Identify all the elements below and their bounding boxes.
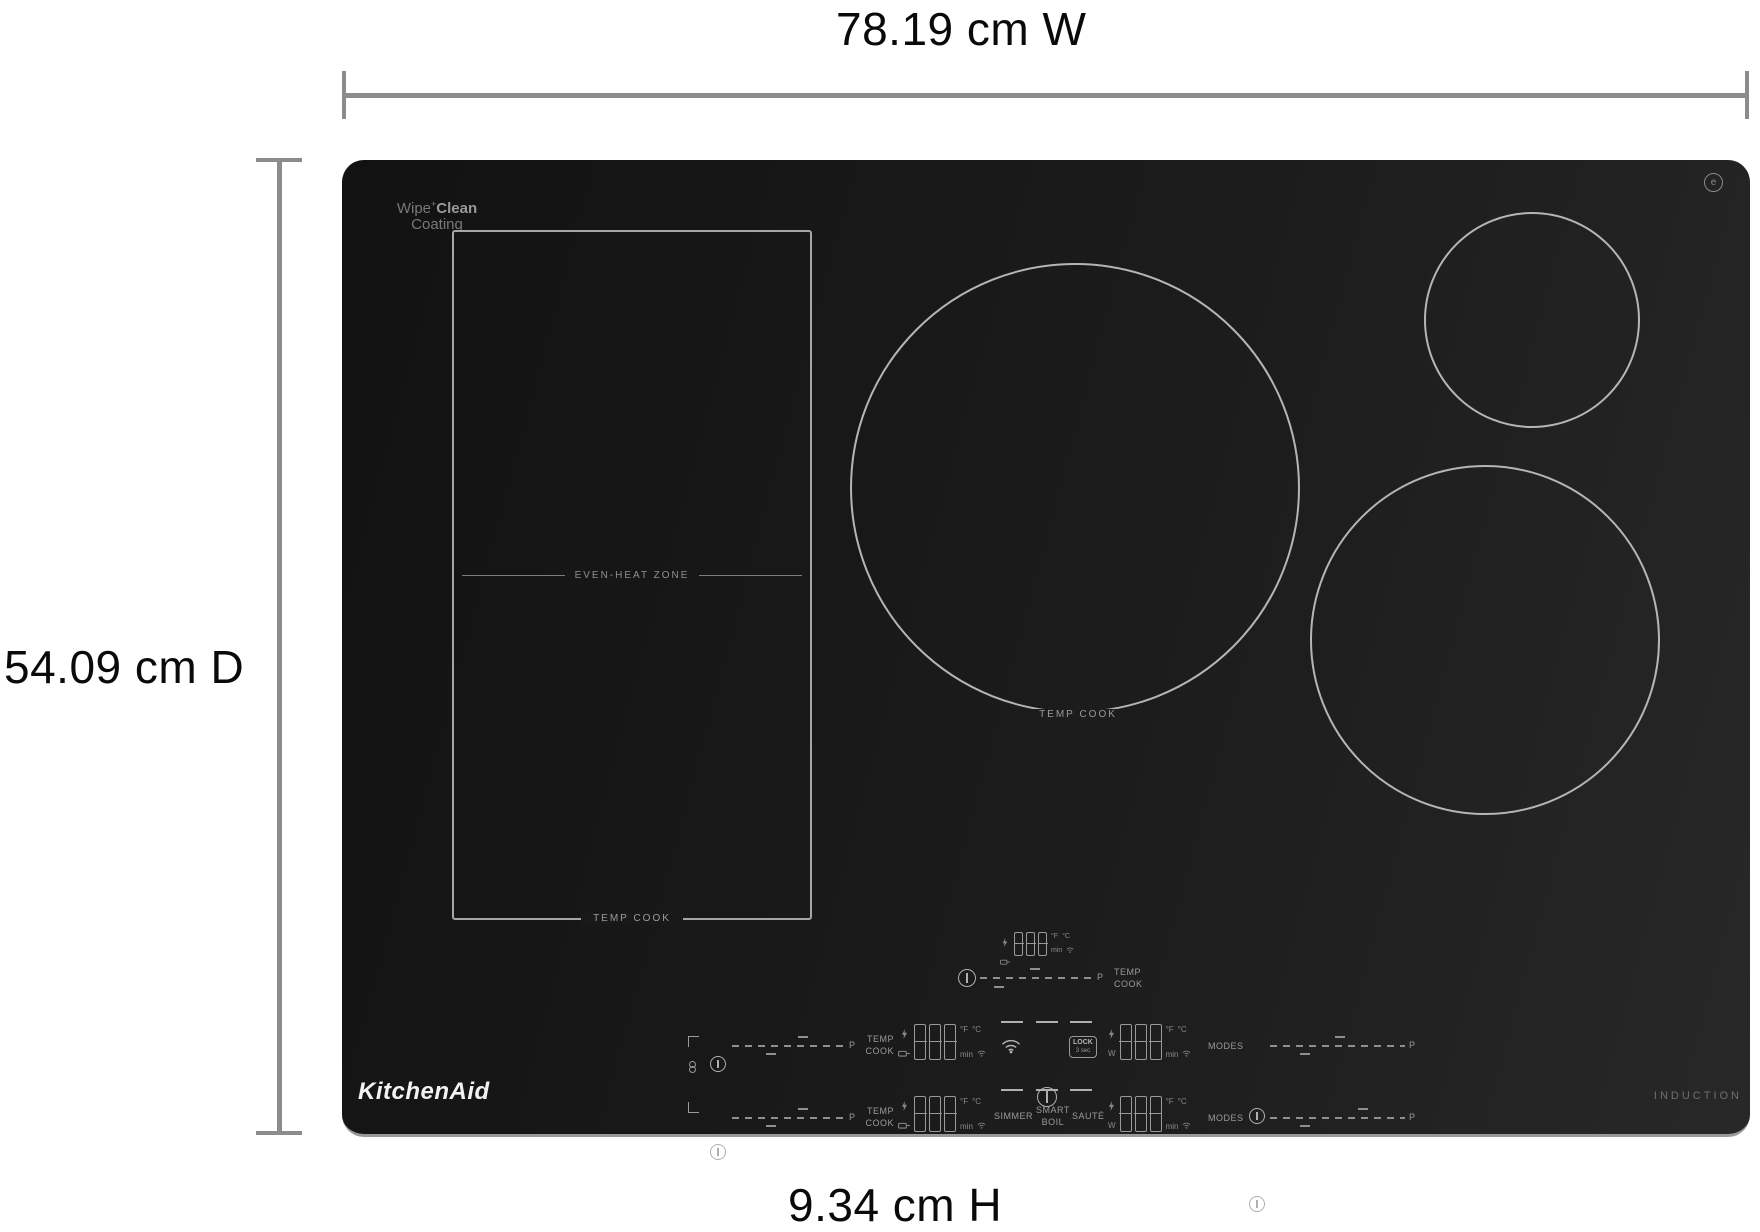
watt-icon: W: [1108, 1121, 1116, 1130]
unit-fahrenheit: °F: [1051, 933, 1058, 941]
boost-icon: [901, 1026, 908, 1044]
simmer-button[interactable]: SIMMER: [994, 1110, 1033, 1122]
slider-tick: [1358, 1108, 1368, 1110]
even-heat-zone-label: EVEN-HEAT ZONE: [575, 570, 690, 581]
center-element-outline: [850, 263, 1300, 713]
slider-tick: [1300, 1053, 1310, 1055]
bridge-bracket-top: [688, 1036, 699, 1047]
wifi-small-icon: [1182, 1050, 1191, 1059]
right-front-power-slider[interactable]: [1270, 1117, 1405, 1119]
pan-icon: [898, 1116, 910, 1134]
modes-label-front: MODES: [1208, 1112, 1244, 1124]
power-clean-icon: e: [1704, 173, 1723, 192]
left-rear-power-slider[interactable]: [732, 1117, 845, 1119]
induction-label: INDUCTION: [1632, 1090, 1742, 1102]
slider-tick: [1335, 1036, 1345, 1038]
left-front-temp-cook-button[interactable]: TEMP COOK: [858, 1033, 894, 1057]
center-temp-cook-label: TEMP COOK: [1027, 709, 1129, 720]
width-dimension-label: 78.19 cm W: [836, 2, 1086, 56]
power-boost-label: P: [1409, 1040, 1415, 1050]
center-element-display: °F°C min: [1000, 932, 1074, 956]
slider-tick: [766, 1053, 776, 1055]
depth-dimension-line: [277, 160, 282, 1133]
center-power-button[interactable]: [958, 969, 976, 987]
pan-icon: [1000, 952, 1010, 970]
right-front-power-button[interactable]: [1249, 1196, 1265, 1212]
depth-dimension-label: 54.09 cm D: [4, 640, 244, 694]
smart-boil-button[interactable]: SMART BOIL: [1036, 1104, 1070, 1128]
lock-button[interactable]: LOCK 3 sec: [1069, 1036, 1097, 1058]
right-bottom-element-outline: [1310, 465, 1660, 815]
seven-segment-digits: [914, 1024, 956, 1060]
indicator-bar: [1070, 1089, 1092, 1091]
left-rear-temp-cook-button[interactable]: TEMP COOK: [858, 1105, 894, 1129]
power-boost-label: P: [849, 1112, 855, 1122]
saute-button[interactable]: SAUTÉ: [1072, 1110, 1105, 1122]
divider-line-left: [462, 575, 565, 576]
slider-tick: [798, 1036, 808, 1038]
height-dimension-label: 9.34 cm H: [788, 1178, 1002, 1232]
left-rear-power-button[interactable]: [710, 1144, 726, 1160]
bridge-bracket-bottom: [688, 1102, 699, 1113]
right-rear-power-button[interactable]: [1249, 1108, 1265, 1124]
wifi-button[interactable]: [1001, 1038, 1021, 1059]
indicator-bar: [1070, 1021, 1092, 1023]
product-dimension-diagram: 78.19 cm W 54.09 cm D 9.34 cm H Wipe+Cle…: [0, 0, 1760, 1232]
slider-tick: [798, 1108, 808, 1110]
indicator-bar: [1001, 1021, 1023, 1023]
even-heat-temp-cook-label-wrap: TEMP COOK: [452, 913, 812, 924]
wifi-small-icon: [1066, 947, 1074, 956]
watt-icon: W: [1108, 1049, 1116, 1058]
depth-dimension-cap-bottom: [256, 1131, 302, 1135]
bridge-link-icon[interactable]: [689, 1061, 696, 1073]
right-front-display: W °F°C min: [1108, 1096, 1191, 1132]
slider-tick: [994, 986, 1004, 988]
indicator-bar: [1036, 1021, 1058, 1023]
center-temp-cook-label-wrap: TEMP COOK: [958, 709, 1198, 720]
boost-icon: [1108, 1026, 1115, 1044]
even-heat-zone-divider: EVEN-HEAT ZONE: [462, 570, 802, 581]
slider-tick: [766, 1125, 776, 1127]
left-front-display: °F°C min: [898, 1024, 986, 1060]
wifi-small-icon: [977, 1050, 986, 1059]
indicator-bar: [1036, 1089, 1058, 1091]
left-rear-display: °F°C min: [898, 1096, 986, 1132]
power-boost-label: P: [1409, 1112, 1415, 1122]
seven-segment-digits: [1120, 1096, 1162, 1132]
kitchenaid-logo: KitchenAid: [358, 1078, 490, 1106]
unit-celsius: °C: [1062, 933, 1070, 941]
indicator-bar: [1001, 1089, 1023, 1091]
slider-tick: [1300, 1125, 1310, 1127]
even-heat-temp-cook-label: TEMP COOK: [581, 913, 683, 924]
cooktop-surface: Wipe+Clean Coating e EVEN-HEAT ZONE TEMP…: [342, 160, 1750, 1137]
right-rear-power-slider[interactable]: [1270, 1045, 1405, 1047]
width-dimension-line: [344, 93, 1746, 98]
pan-icon: [898, 1044, 910, 1062]
wipeclean-clean: Clean: [436, 200, 477, 217]
slider-tick: [1030, 968, 1040, 970]
boost-icon: [901, 1098, 908, 1116]
unit-minutes: min: [1051, 947, 1062, 955]
wipeclean-wipe: Wipe: [397, 200, 431, 217]
wifi-small-icon: [1182, 1122, 1191, 1131]
divider-line-right: [699, 575, 802, 576]
right-rear-display: W °F°C min: [1108, 1024, 1191, 1060]
power-boost-label: P: [1097, 972, 1103, 982]
center-power-slider[interactable]: [980, 977, 1092, 979]
modes-label-rear: MODES: [1208, 1040, 1244, 1052]
left-front-power-button[interactable]: [710, 1056, 726, 1072]
boost-icon: [1108, 1098, 1115, 1116]
right-top-element-outline: [1424, 212, 1640, 428]
center-temp-cook-button[interactable]: TEMP COOK: [1114, 966, 1143, 990]
seven-segment-digits: [1014, 932, 1047, 956]
power-boost-label: P: [849, 1040, 855, 1050]
seven-segment-digits: [1120, 1024, 1162, 1060]
wifi-small-icon: [977, 1122, 986, 1131]
left-front-power-slider[interactable]: [732, 1045, 845, 1047]
seven-segment-digits: [914, 1096, 956, 1132]
width-dimension-cap-right: [1745, 71, 1749, 119]
wipeclean-coating-logo: Wipe+Clean Coating: [372, 196, 502, 233]
boost-icon: [1002, 934, 1008, 952]
